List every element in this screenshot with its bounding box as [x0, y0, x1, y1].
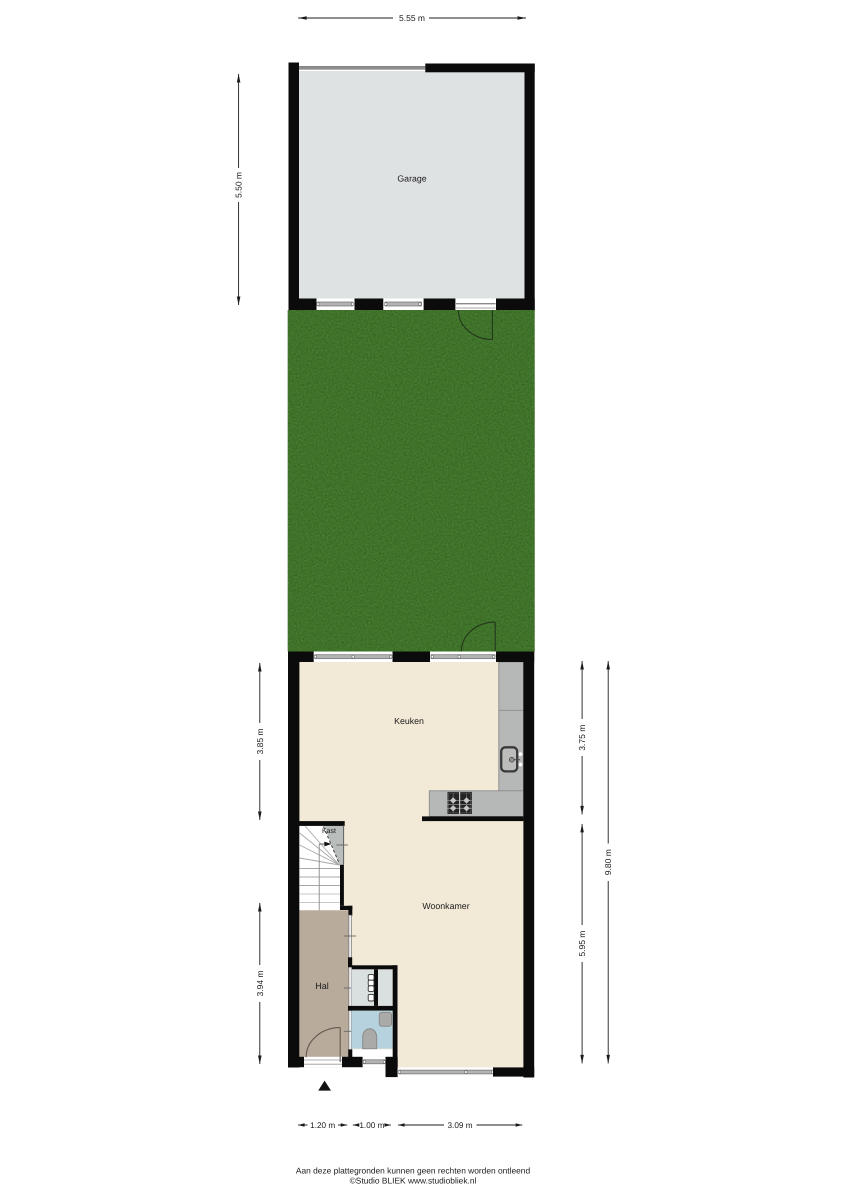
svg-text:1.20 m: 1.20 m [310, 1121, 335, 1130]
svg-text:3.09 m: 3.09 m [447, 1121, 472, 1130]
svg-text:5.50 m: 5.50 m [234, 172, 244, 198]
svg-text:Hal: Hal [315, 981, 329, 991]
svg-text:Garage: Garage [397, 174, 426, 184]
svg-text:5.95 m: 5.95 m [577, 931, 587, 957]
svg-text:Kast: Kast [322, 828, 336, 835]
svg-text:Aan deze plattegronden kunnen: Aan deze plattegronden kunnen geen recht… [296, 1166, 531, 1176]
svg-text:©Studio BLIEK www.studiobliek.: ©Studio BLIEK www.studiobliek.nl [350, 1176, 477, 1186]
svg-text:1.00 m: 1.00 m [359, 1121, 384, 1130]
svg-text:3.75 m: 3.75 m [577, 725, 587, 751]
svg-text:5.55 m: 5.55 m [399, 13, 425, 23]
svg-text:Keuken: Keuken [394, 716, 424, 726]
svg-text:3.94 m: 3.94 m [255, 971, 265, 997]
svg-text:9.80 m: 9.80 m [603, 849, 613, 875]
svg-text:3.85 m: 3.85 m [255, 729, 265, 755]
svg-text:Woonkamer: Woonkamer [422, 901, 469, 911]
